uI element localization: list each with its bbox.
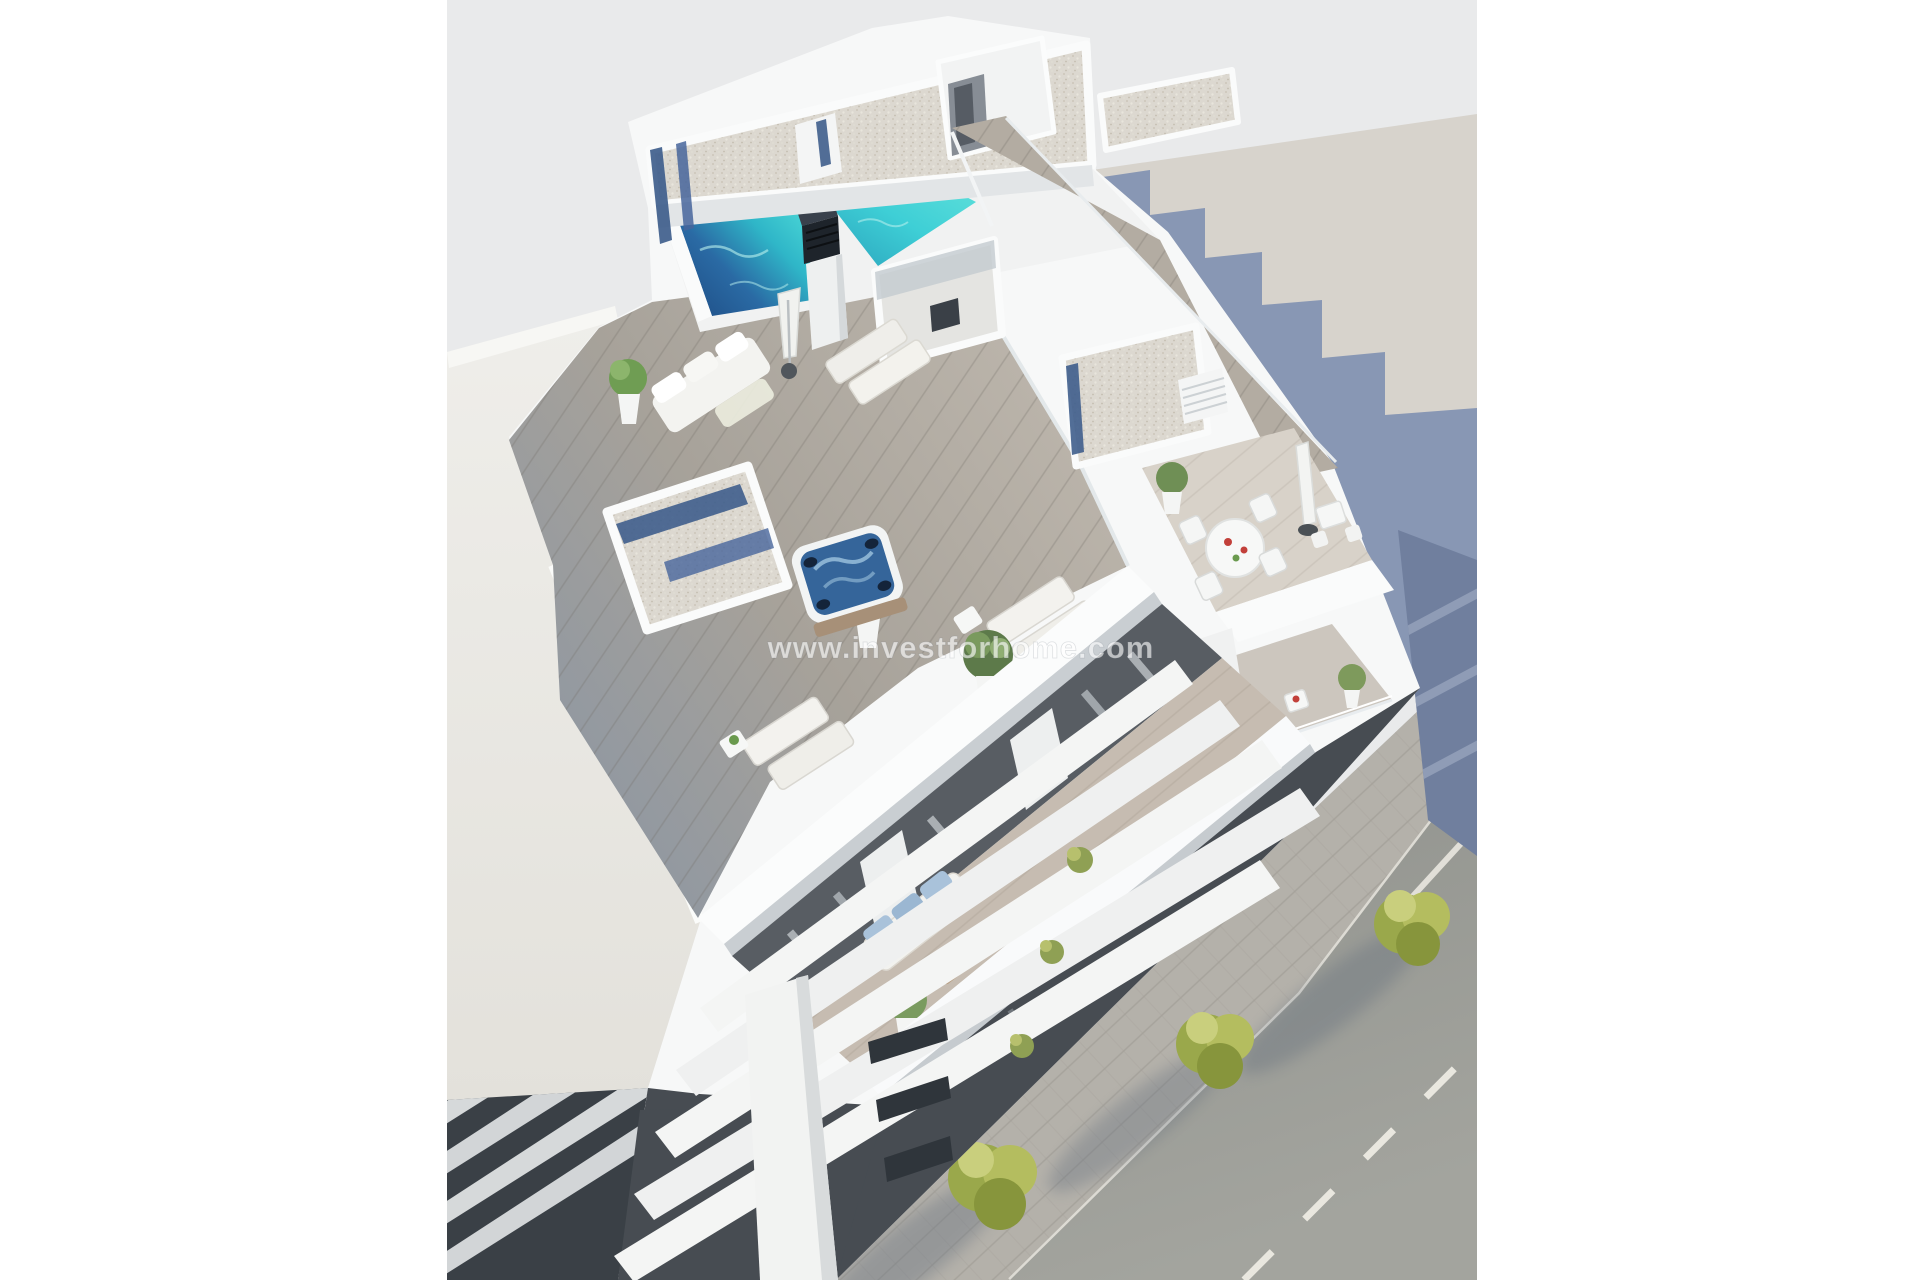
watermark-text: www.investforhome.com bbox=[767, 630, 1155, 665]
round-dining-table bbox=[1206, 519, 1264, 577]
render-area: www.investforhome.com bbox=[430, 0, 1480, 1280]
architectural-render: www.investforhome.com bbox=[0, 0, 1920, 1280]
render-page: www.investforhome.com bbox=[0, 0, 1920, 1280]
